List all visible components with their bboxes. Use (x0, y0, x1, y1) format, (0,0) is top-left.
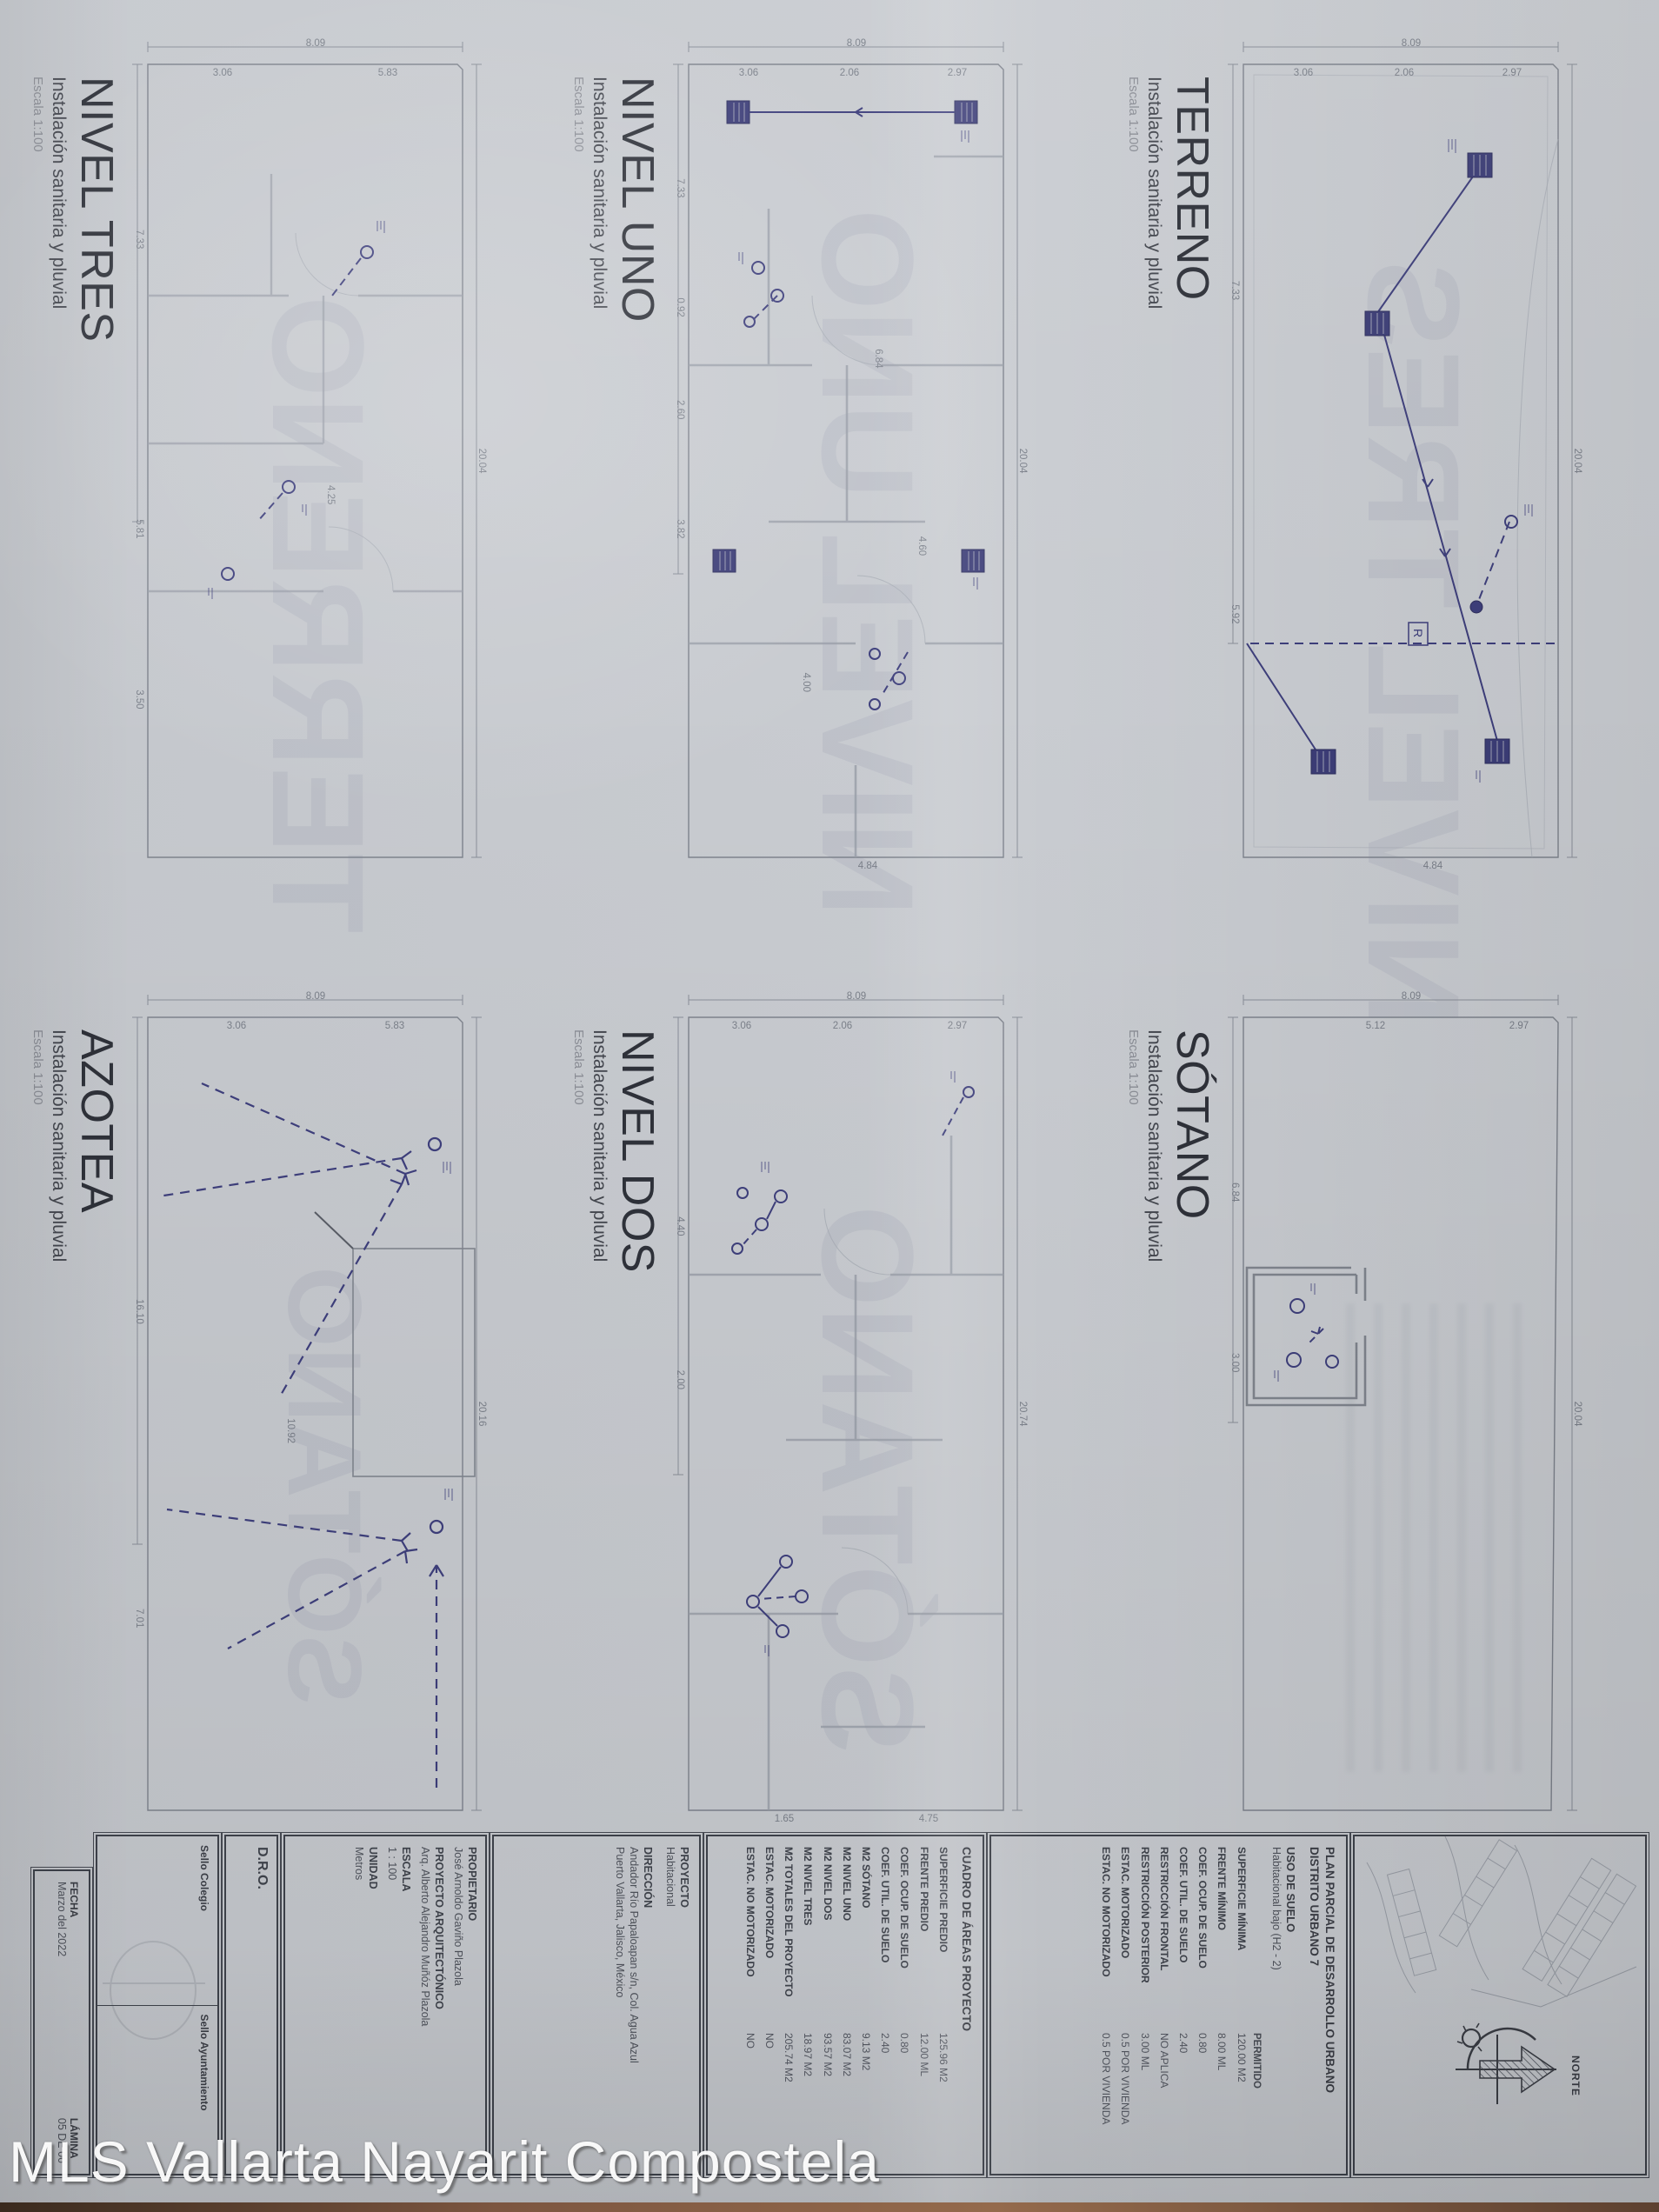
plan-panel-nivel-uno: NIVEL UNO (543, 35, 1029, 887)
dimension-layer: 8.095.833.0620.047.335.813.504.25 (129, 35, 489, 887)
dimension-layer: 8.095.833.0620.1616.107.0110.92 (129, 988, 489, 1840)
dimension-label: 20.16 (476, 1402, 487, 1427)
plan-drawing-nivel-dos: SÓTANO (670, 988, 1029, 1840)
fecha-value: Marzo del 2022 (56, 1882, 68, 1956)
cuadro-areas-table: SUPERFICIE PREDIO125.96 M2FRENTE PREDIO1… (741, 1847, 953, 2163)
dimension-label: 10.92 (285, 1418, 296, 1443)
dimension-label: 20.04 (1017, 449, 1028, 474)
dimension-label: 2.60 (675, 400, 685, 419)
dimension-label: 5.92 (1229, 604, 1240, 623)
dimension-label: 4.25 (325, 485, 336, 504)
dimension-label: 16.10 (134, 1299, 144, 1324)
watermark-text: MLS Vallarta Nayarit Compostela (9, 2129, 880, 2195)
dimension-label: 6.84 (1229, 1183, 1240, 1202)
plan-drawing-terreno: NIVEL TRES (1224, 35, 1584, 887)
sun-icon (1462, 2029, 1480, 2047)
escala-label: ESCALA (400, 1847, 412, 2163)
proyecto-value: Habitacional (664, 1847, 676, 2163)
plan-subtitle: Instalación sanitaria y pluvial (48, 77, 69, 887)
unidad-value: Metros (353, 1847, 365, 2163)
dimension-layer: 8.092.972.063.0620.047.335.924.84 (1224, 35, 1584, 887)
dimension-label: 0.92 (675, 297, 685, 316)
norte-label: NORTE (1569, 2055, 1582, 2096)
plan-subtitle: Instalación sanitaria y pluvial (48, 1029, 69, 1840)
arquitecto-box: PROPIETARIO José Arnoldo Gaviño Plazola … (283, 1835, 487, 2175)
plan-caption: TERRENO Instalación sanitaria y pluvial … (1126, 35, 1216, 887)
plan-title: NIVEL DOS (613, 1029, 661, 1840)
direccion-line1: Andador Río Papaloapan s/n, Col. Agua Az… (628, 1847, 640, 2163)
table-row: ESTAC. MOTORIZADO0.5 POR VIVIENDA (1116, 1847, 1135, 2163)
dimension-label: 20.74 (1017, 1402, 1028, 1427)
sellos-box: Sello Colegio Sello Ayuntamiento (96, 1835, 219, 2175)
plan-parcial-table: SUPERFICIE MÍNIMA120.00 M2FRENTE MÍNIMO8… (1096, 1847, 1251, 2163)
location-map: NORTE (1355, 1836, 1645, 2174)
dimension-label: 7.33 (1229, 281, 1240, 300)
plan-panel-nivel-tres: TERRENO (2, 35, 489, 887)
propietario-label: PROPIETARIO (466, 1847, 478, 2163)
dimension-label: 4.00 (801, 673, 811, 692)
plan-scale: Escala 1:100 (1126, 77, 1141, 887)
uso-de-suelo-value: Habitacional bajo (H2 - 2) (1270, 1847, 1283, 2163)
propietario-value: José Arnoldo Gaviño Plazola (452, 1847, 464, 2163)
table-row: COEF. OCUP. DE SUELO0.80 (1193, 1847, 1212, 2163)
plan-subtitle: Instalación sanitaria y pluvial (1143, 1029, 1164, 1840)
plan-panel-terreno: NIVEL TRES (1097, 35, 1584, 887)
dimension-label: 20.04 (1572, 1402, 1582, 1427)
dimension-label: 2.06 (833, 1021, 852, 1031)
dimension-label: 3.50 (134, 690, 144, 709)
dro-box: D.R.O. (224, 1835, 278, 2175)
proyecto-box: PROYECTO Habitacional DIRECCIÓN Andador … (492, 1835, 701, 2175)
dimension-label: 5.83 (385, 1021, 404, 1031)
plan-subtitle: Instalación sanitaria y pluvial (589, 77, 610, 887)
location-map-box: NORTE (1353, 1835, 1647, 2175)
cuadro-areas-title: CUADRO DE ÁREAS PROYECTO (958, 1847, 974, 2163)
dimension-label: 8.09 (1402, 38, 1421, 49)
dimension-label: 3.06 (212, 68, 231, 78)
sello-colegio-label: Sello Colegio (198, 1845, 210, 1911)
unidad-label: UNIDAD (367, 1847, 379, 2163)
dimension-label: 2.06 (1395, 68, 1414, 78)
proyecto-arquitectonico-value: Arq. Alberto Alejandro Muñóz Plazola (419, 1847, 431, 2163)
dimension-label: 4.60 (916, 536, 927, 556)
table-row: RESTRICCIÓN FRONTALNO APLICA (1155, 1847, 1174, 2163)
permitido-column-header: PERMITIDO (1251, 2033, 1262, 2163)
dimension-label: 4.84 (858, 861, 877, 871)
dimension-label: 3.06 (739, 68, 758, 78)
plan-scale: Escala 1:100 (571, 1029, 586, 1840)
dimension-label: 7.33 (134, 230, 144, 249)
table-row: FRENTE MÍNIMO8.00 ML (1212, 1847, 1231, 2163)
dimension-label: 20.04 (1572, 449, 1582, 474)
table-row: ESTAC. MOTORIZADONO (760, 1847, 779, 2163)
table-row: COEF. UTIL. DE SUELO2.40 (876, 1847, 895, 2163)
plan-panel-sotano: 8.092.975.1220.046.843.00 SÓTANO Instala… (1097, 988, 1584, 1840)
plan-parcial-box: PLAN PARCIAL DE DESARROLLO URBANO DISTRI… (989, 1835, 1348, 2175)
direccion-line2: Puerto Vallarta, Jalisco, México (614, 1847, 626, 2163)
plan-caption: AZOTEA Instalación sanitaria y pluvial E… (30, 988, 120, 1840)
plan-scale: Escala 1:100 (571, 77, 586, 887)
dimension-label: 1.65 (775, 1814, 794, 1824)
plan-scale: Escala 1:100 (30, 77, 45, 887)
plan-subtitle: Instalación sanitaria y pluvial (1143, 77, 1164, 887)
dimension-label: 8.09 (306, 991, 325, 1002)
dimension-label: 2.97 (948, 68, 967, 78)
plan-scale: Escala 1:100 (1126, 1029, 1141, 1840)
dimension-label: 2.97 (1502, 68, 1522, 78)
plan-title: TERRENO (1168, 77, 1216, 887)
plan-title: NIVEL UNO (613, 77, 661, 887)
dimension-layer: 8.092.975.1220.046.843.00 (1224, 988, 1584, 1840)
plan-title: AZOTEA (72, 1029, 120, 1840)
dimension-label: 8.09 (306, 38, 325, 49)
dimension-label: 2.97 (1509, 1021, 1529, 1031)
architectural-sheet: NIVEL TRES (0, 0, 1659, 2212)
plan-title: SÓTANO (1168, 1029, 1216, 1840)
dimension-label: 8.09 (1402, 991, 1421, 1002)
dimension-label: 4.75 (919, 1814, 938, 1824)
table-row: COEF. UTIL. DE SUELO2.40 (1174, 1847, 1193, 2163)
cuadro-areas-box: CUADRO DE ÁREAS PROYECTO SUPERFICIE PRED… (706, 1835, 984, 2175)
dimension-label: 4.84 (1423, 861, 1442, 871)
table-row: M2 TOTALES DEL PROYECTO205.74 M2 (779, 1847, 798, 2163)
blueprint-photo: NIVEL TRES (0, 0, 1659, 2212)
proyecto-label: PROYECTO (678, 1847, 690, 2163)
plan-drawing-sotano: 8.092.975.1220.046.843.00 (1224, 988, 1584, 1840)
dimension-layer: 8.092.972.063.0620.047.330.922.603.824.8… (670, 35, 1029, 887)
dimension-layer: 8.092.972.063.0620.744.402.004.751.65 (670, 988, 1029, 1840)
table-row: COEF. OCUP. DE SUELO0.80 (895, 1847, 914, 2163)
dimension-label: 2.00 (675, 1370, 685, 1389)
dimension-label: 4.40 (675, 1216, 685, 1236)
plan-panel-nivel-dos: SÓTANO (543, 988, 1029, 1840)
dimension-label: 20.04 (476, 449, 487, 474)
dimension-label: 2.97 (948, 1021, 967, 1031)
plan-scale: Escala 1:100 (30, 1029, 45, 1840)
table-row: M2 NIVEL TRES18.97 M2 (798, 1847, 817, 2163)
dimension-label: 3.06 (1294, 68, 1313, 78)
table-row: SUPERFICIE PREDIO125.96 M2 (934, 1847, 953, 2163)
plan-subtitle: Instalación sanitaria y pluvial (589, 1029, 610, 1840)
plan-drawing-nivel-uno: NIVEL UNO (670, 35, 1029, 887)
photo-edge-strip (0, 2202, 1659, 2212)
plan-drawing-nivel-tres: TERRENO (129, 35, 489, 887)
plan-caption: SÓTANO Instalación sanitaria y pluvial E… (1126, 988, 1216, 1840)
plan-caption: NIVEL DOS Instalación sanitaria y pluvia… (571, 988, 661, 1840)
dimension-label: 3.06 (227, 1021, 246, 1031)
plan-parcial-title-line2: DISTRITO URBANO 7 (1306, 1847, 1322, 2163)
sello-ayuntamiento-label: Sello Ayuntamiento (198, 2015, 210, 2111)
dimension-label: 8.09 (847, 991, 866, 1002)
plan-caption: NIVEL TRES Instalación sanitaria y pluvi… (30, 35, 120, 887)
dimension-label: 2.06 (840, 68, 859, 78)
proyecto-arquitectonico-label: PROYECTO ARQUITECTÓNICO (433, 1847, 445, 2163)
dimension-label: 8.09 (847, 38, 866, 49)
plan-title: NIVEL TRES (72, 77, 120, 887)
dimension-label: 6.84 (873, 349, 883, 368)
dimension-label: 5.12 (1366, 1021, 1385, 1031)
table-row: M2 NIVEL DOS93.57 M2 (817, 1847, 836, 2163)
table-row: ESTAC. NO MOTORIZADO0.5 POR VIVIENDA (1096, 1847, 1116, 2163)
fecha-label: FECHA (68, 1882, 80, 1956)
dimension-label: 7.33 (675, 178, 685, 197)
direccion-label: DIRECCIÓN (642, 1847, 654, 2163)
escala-value: 1 : 100 (386, 1847, 398, 2163)
dimension-label: 5.81 (134, 519, 144, 538)
table-row: ESTAC. NO MOTORIZADONO (741, 1847, 760, 2163)
dimension-label: 3.00 (1229, 1353, 1240, 1372)
north-arrow-icon (1480, 2047, 1555, 2092)
table-row: RESTRICCIÓN POSTERIOR3.00 ML (1135, 1847, 1154, 2163)
dimension-label: 3.82 (675, 519, 685, 538)
dimension-label: 5.83 (378, 68, 397, 78)
table-row: M2 SÓTANO9.13 M2 (856, 1847, 876, 2163)
dro-label: D.R.O. (254, 1847, 270, 2163)
dimension-label: 7.01 (134, 1609, 144, 1628)
plan-caption: NIVEL UNO Instalación sanitaria y pluvia… (571, 35, 661, 887)
plan-panel-azotea: SÓTANO (2, 988, 489, 1840)
table-row: FRENTE PREDIO12.00 ML (914, 1847, 933, 2163)
sello-colegio-cell: Sello Colegio (97, 1836, 217, 2005)
table-row: SUPERFICIE MÍNIMA120.00 M2 (1231, 1847, 1250, 2163)
dimension-label: 3.06 (732, 1021, 751, 1031)
uso-de-suelo-label: USO DE SUELO (1284, 1847, 1297, 2163)
plan-drawing-azotea: SÓTANO (129, 988, 489, 1840)
plan-parcial-title-line1: PLAN PARCIAL DE DESARROLLO URBANO (1322, 1847, 1337, 2163)
table-row: M2 NIVEL UNO83.07 M2 (837, 1847, 856, 2163)
